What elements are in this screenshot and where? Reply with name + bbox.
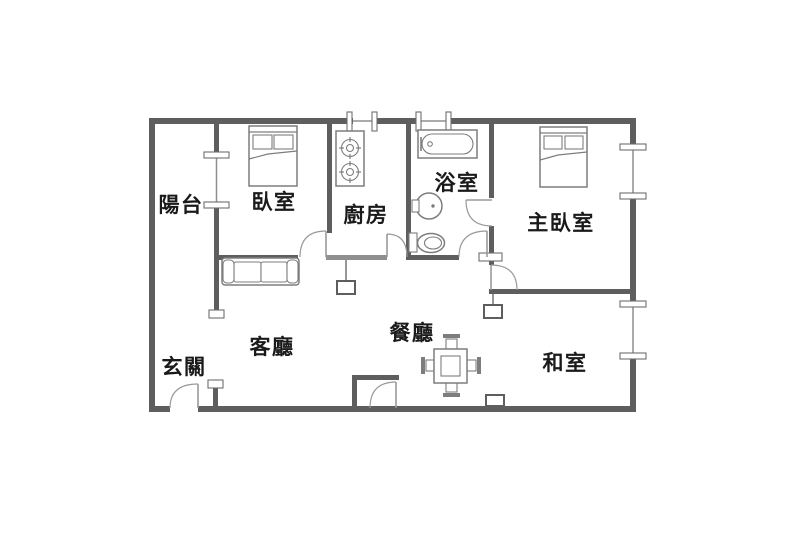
window-tick — [620, 193, 646, 199]
room-label-entryway: 玄關 — [162, 355, 207, 379]
chair-back — [443, 334, 460, 338]
entry-door — [170, 384, 198, 413]
window-tick — [620, 301, 646, 307]
window-tick — [204, 152, 229, 158]
balcony-wall-upper — [214, 118, 219, 156]
room-label-balcony: 陽台 — [159, 193, 204, 217]
outer-wall-left — [149, 118, 155, 412]
kitchen-door-arc — [387, 234, 407, 257]
outer-wall-top — [149, 118, 636, 124]
single-bed — [249, 126, 297, 186]
entry-stub-wall — [213, 388, 218, 408]
window-tick — [416, 112, 421, 131]
wall-unit — [484, 294, 502, 318]
chair-back — [421, 357, 425, 374]
washbasin — [412, 193, 442, 219]
wall-unit — [337, 260, 355, 294]
bathroom-bottom-wall — [406, 255, 459, 260]
entry-stub-endcap — [208, 380, 223, 388]
gas-stove — [336, 131, 364, 186]
bathtub — [418, 130, 477, 158]
room-label-bedroom: 臥室 — [252, 190, 297, 214]
tatami-door-arc — [491, 265, 517, 290]
toilet — [409, 233, 445, 253]
window-tick — [204, 202, 229, 208]
balcony-wall-endcap — [209, 310, 224, 318]
kitchen-door — [387, 234, 407, 257]
room-label-master-bedroom: 主臥室 — [527, 211, 595, 235]
chair-seat — [446, 339, 457, 349]
closet-door-arc — [370, 382, 396, 408]
window-tick — [620, 353, 646, 359]
window-tick — [372, 112, 377, 131]
master-bedroom-door-arc — [466, 200, 492, 226]
double-bed — [540, 127, 587, 187]
bathroom-master-wall-upper — [489, 118, 494, 198]
chair-back — [477, 357, 481, 374]
kitchen-bottom-wall — [326, 255, 387, 260]
master-bedroom-door — [466, 200, 492, 226]
bedroom-door-arc — [300, 231, 326, 257]
chair-back — [443, 393, 460, 397]
window-tick — [620, 144, 646, 150]
room-label-kitchen: 廚房 — [344, 203, 389, 227]
room-label-living-room: 客廳 — [250, 335, 295, 359]
tatami-room-wall — [489, 289, 636, 294]
wall-unit — [486, 395, 504, 406]
hall-junction-plate — [479, 253, 502, 261]
closet-top-wall — [352, 375, 399, 380]
room-label-tatami-room: 和室 — [543, 351, 588, 375]
outer-wall-bottom — [149, 406, 636, 412]
window-tick — [446, 112, 451, 131]
room-label-bathroom: 浴室 — [435, 171, 480, 195]
sofa — [222, 258, 299, 285]
floor-plan-drawing: 陽台 臥室 廚房 浴室 主臥室 客廳 餐廳 玄關 和室 — [0, 0, 800, 548]
bedroom-door — [300, 231, 326, 257]
room-label-dining-room: 餐廳 — [390, 321, 435, 345]
window-tick — [347, 112, 352, 131]
tatami-door — [491, 265, 517, 290]
bedroom-kitchen-wall — [327, 118, 332, 233]
closet-door — [370, 382, 396, 408]
entry-door-arc — [170, 384, 198, 408]
floor-plan: 陽台 臥室 廚房 浴室 主臥室 客廳 餐廳 玄關 和室 — [0, 0, 800, 548]
